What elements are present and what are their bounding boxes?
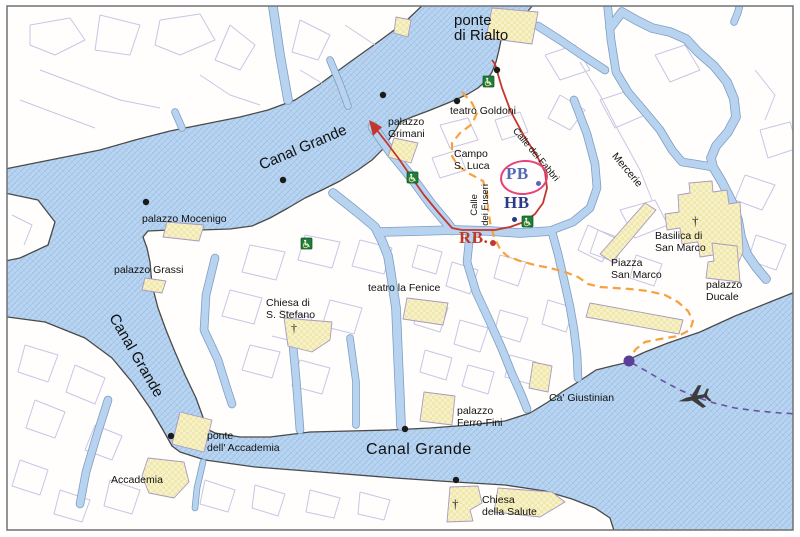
vaporetto-stop-dot [380,92,386,98]
vaporetto-stop-dot [280,177,286,183]
vaporetto-boarding-icon [483,76,494,87]
building-small-san-polo [394,17,411,37]
building-ponte-di-rialto [486,8,538,44]
vaporetto-stop-dot [454,98,460,104]
vaporetto-stop-dot [494,67,500,73]
vaporetto-boarding-icon [407,172,418,183]
vaporetto-boarding-icon [301,238,312,249]
vaporetto-stop-dot [168,433,174,439]
vaporetto-stop-dot [143,199,149,205]
vaporetto-boarding-icon [522,216,533,227]
vaporetto-stop-dot [402,426,408,432]
building-palazzo-grassi [142,278,166,293]
map-geography [0,0,800,537]
venice-map: ponte di Rialto teatro Goldoni Campo S. … [0,0,800,537]
boat-route-start-dot [624,356,635,367]
building-palazzo-ferro-fini [420,392,455,425]
building-ca-giustinian [529,362,552,392]
vaporetto-stop-dot [453,477,459,483]
